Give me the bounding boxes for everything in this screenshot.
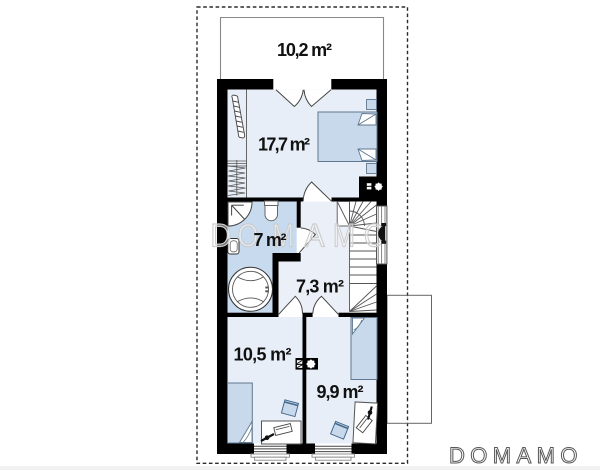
svg-text:10,5 m²: 10,5 m² [234, 345, 292, 365]
svg-text:17,7 m²: 17,7 m² [258, 135, 310, 155]
svg-text:9,9 m²: 9,9 m² [317, 382, 364, 402]
svg-text:7 m²: 7 m² [254, 230, 287, 250]
svg-text:M: M [333, 218, 355, 254]
svg-text:DOMAMO: DOMAMO [449, 443, 583, 468]
svg-text:D: D [211, 218, 232, 254]
svg-text:7,3 m²: 7,3 m² [296, 277, 344, 297]
svg-text:10,2 m²: 10,2 m² [277, 40, 332, 60]
svg-text:A: A [305, 218, 325, 254]
